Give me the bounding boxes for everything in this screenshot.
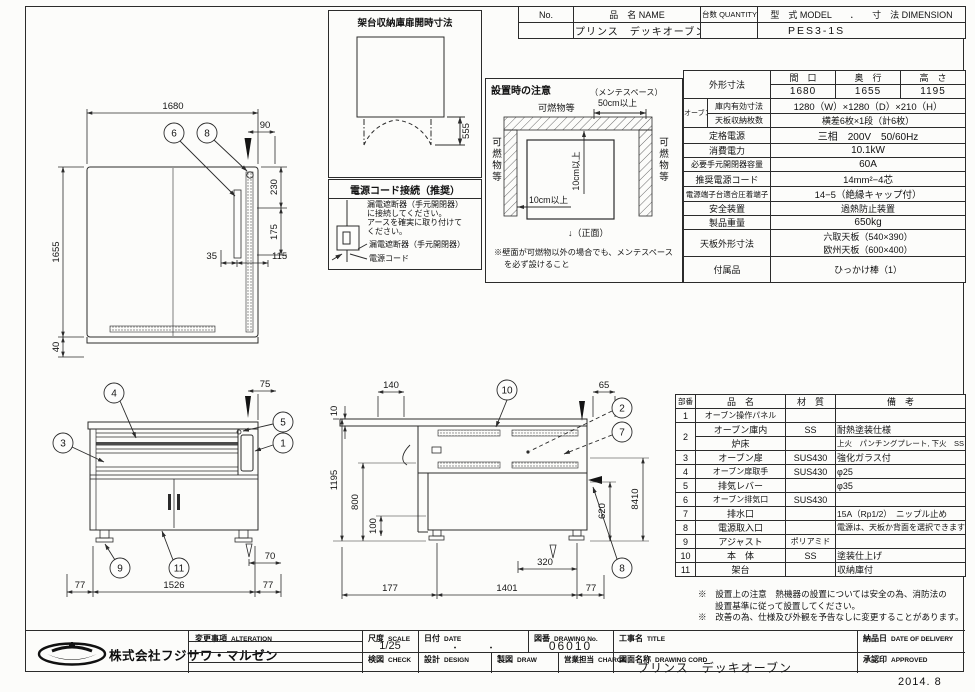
part-no: 5 [676,479,696,493]
install-note-1: ※壁面が可燃物以外の場合でも、メンテスペース [494,247,673,257]
combustible-top-label: 可燃物等 [538,102,575,113]
check-header: 検図CHECK [365,653,414,666]
part-mat: SS [786,423,836,437]
part-no: 11 [676,563,696,577]
alteration-line-3 [189,662,362,663]
balloon-1: 1 [280,439,286,450]
header-table: No. 品 名 NAME 台数 QUANTITY 型 式 MODEL ． 寸 法… [518,6,966,39]
drawing-number: 06010 [528,639,613,653]
design-en: DESIGN [444,657,469,664]
parts-row-11: 11 架台 収納庫付 [676,563,966,577]
side-dim-1195: 1195 [329,470,340,490]
front-dim-77-left: 77 [75,580,86,591]
plan-dim-90: 90 [260,120,271,131]
company-logo-icon [35,639,109,667]
side-outline [340,401,602,558]
note-line-1: ※ 設置上の注意 熱機器の設置については安全の為、消防法の [698,589,962,601]
spec-h-value: 1195 [901,85,966,99]
combustible-left-label: 可燃物等 [488,137,502,183]
part-note: 強化ガラス付 [836,451,966,465]
title-block: 株式会社フジサワ・マルゼン 変更事項ALTERATION 尺度SCALE 1/2… [25,630,965,672]
part-mat [786,521,836,535]
parts-row-2b: 炉床 上火 パンチングプレート, 下火 SS [676,437,966,451]
part-name: オーブン排気口 [696,493,786,507]
part-name: 排水口 [696,507,786,521]
side-dim-65: 65 [599,380,610,391]
front-dim-70: 70 [265,551,276,562]
spec-w-label: 間 口 [771,71,836,85]
model-number: PES3-1S [758,23,966,39]
part-note: 収納庫付 [836,563,966,577]
delivery-en: DATE OF DELIVERY [891,636,953,643]
approved-header: 承認印APPROVED [860,653,930,666]
spec-d-label: 奥 行 [836,71,901,85]
part-mat: SS [786,549,836,563]
part-name: 排気レバー [696,479,786,493]
part-no: 4 [676,465,696,479]
parts-header-no: 部番 [676,395,696,409]
tray-size-line1: 六取天板（540×390） [772,230,964,243]
part-name: 本 体 [696,549,786,563]
spec-tray-size-value: 六取天板（540×390） 欧州天板（600×400） [771,230,966,257]
dim-10cm-vertical: 10cm以上 [571,151,581,190]
balloon-6: 6 [171,129,177,140]
spec-terminal-label: 電源端子台適合圧着端子 [684,187,771,202]
charge-jp: 営業担当 [564,655,594,664]
part-mat: SUS430 [786,493,836,507]
side-dim-77: 77 [586,583,597,594]
balloon-9: 9 [117,564,123,575]
spec-consumption-label: 消費電力 [684,144,771,158]
parts-row-7: 7 排水口 15A（Rp1/2） ニップル止め [676,507,966,521]
plan-dim-230: 230 [269,179,280,195]
parts-row-5: 5 排気レバー φ35 [676,479,966,493]
side-dimensions [333,392,649,599]
drawing-sheet: No. 品 名 NAME 台数 QUANTITY 型 式 MODEL ． 寸 法… [0,0,975,692]
scale-value: 1/25 [362,640,418,652]
front-view-drawing: 75 70 77 1526 77 4 3 5 1 9 11 [25,378,325,628]
spec-outline-label: 外形寸法 [684,71,771,99]
side-dim-140: 140 [383,380,399,391]
spec-safety-label: 安全装置 [684,202,771,216]
part-name: オーブン扉取手 [696,465,786,479]
spec-tray-value: 横差6枚×1段（計6枚） [771,114,966,128]
part-name: 炉床 [696,437,786,451]
part-note: 塗装仕上げ [836,549,966,563]
part-note [836,409,966,423]
spec-d-value: 1655 [836,85,901,99]
balloon-3: 3 [60,439,66,450]
part-name: アジャスト [696,535,786,549]
product-name: プリンス デッキオーブン [574,23,701,39]
header-no-value [519,23,574,39]
check-jp: 検図 [368,655,384,664]
stand-outline [357,37,465,145]
part-no: 6 [676,493,696,507]
part-no: 10 [676,549,696,563]
part-mat [786,437,836,451]
side-dim-620: 620 [597,503,608,519]
part-no: 1 [676,409,696,423]
parts-header-note: 備 考 [836,395,966,409]
parts-row-3: 3 オーブン扉 SUS430 強化ガラス付 [676,451,966,465]
front-dim-1526: 1526 [163,580,184,591]
part-mat [786,409,836,423]
side-dim-177: 177 [382,583,398,594]
spec-power-label: 定格電源 [684,128,771,144]
side-dim-8410: 8410 [630,488,641,509]
side-dim-100: 100 [368,518,379,534]
plan-dim-1680: 1680 [162,101,183,112]
balloon-10: 10 [501,386,513,397]
spec-safety-value: 過熱防止装置 [771,202,966,216]
spec-accessory-value: ひっかけ棒（1） [771,257,966,283]
spec-consumption-value: 10.1kW [771,144,966,158]
part-mat [786,479,836,493]
parts-row-2a: 2 オーブン庫内 SS 耐熱塗装仕様 [676,423,966,437]
spec-terminal-value: 14−5（絶縁キャップ付） [771,187,966,202]
part-name: オーブン操作パネル [696,409,786,423]
construction-title-jp: 工事名 [619,634,643,643]
tray-size-line2: 欧州天板（600×400） [772,243,964,256]
stand-door-box-title: 架台収納庫扉開時寸法 [329,15,481,29]
plan-dim-115: 115 [272,251,287,262]
parts-row-8: 8 電源取入口 電源は、天板か背面を選択できます [676,521,966,535]
spec-table: 外形寸法 間 口 奥 行 高 さ 1680 1655 1195 オーブン 庫内有… [683,70,966,283]
stand-dim-555: 555 [461,123,472,139]
plan-dim-40: 40 [51,342,62,353]
part-name: 電源取入口 [696,521,786,535]
part-mat [786,507,836,521]
part-note [836,493,966,507]
front-dim-77-right: 77 [263,580,274,591]
side-dim-1401: 1401 [496,583,517,594]
part-mat: SUS430 [786,465,836,479]
spec-power-value: 三相 200V 50/60Hz [771,128,966,144]
parts-header-name: 品 名 [696,395,786,409]
header-no-label: No. [519,7,574,23]
part-note: 15A（Rp1/2） ニップル止め [836,507,966,521]
stand-door-drawing: 555 [329,29,481,175]
power-cord-label: 電源コード [369,253,409,264]
drawing-name-value: プリンス デッキオーブン [637,659,792,676]
side-dim-320: 320 [537,557,553,568]
balloon-11: 11 [174,564,185,575]
balloon-2: 2 [619,404,625,415]
maint-50cm-label: 50cm以上 [598,98,637,108]
parts-table: 部番 品 名 材 質 備 考 1 オーブン操作パネル 2 オーブン庫内 SS 耐… [675,394,966,577]
breaker-symbol [332,200,367,262]
spec-accessory-label: 付属品 [684,257,771,283]
part-note: φ35 [836,479,966,493]
part-name: 架台 [696,563,786,577]
parts-header-mat: 材 質 [786,395,836,409]
install-caution-box: 設置時の注意 [485,78,683,283]
balloon-5: 5 [280,418,286,429]
front-balloon-leaders [53,383,293,578]
balloon-4: 4 [111,389,117,400]
part-no: 7 [676,507,696,521]
design-jp: 設計 [424,655,440,664]
parts-row-9: 9 アジャスト ポリアミド [676,535,966,549]
design-header: 設計DESIGN [421,653,472,666]
combustible-right-label: 可燃物等 [655,137,669,183]
part-no: 9 [676,535,696,549]
header-qty-value [701,23,758,39]
alteration-header: 変更事項ALTERATION [192,632,275,645]
front-direction-label: ↓（正面） [568,228,609,238]
part-no: 3 [676,451,696,465]
parts-row-1: 1 オーブン操作パネル [676,409,966,423]
side-dim-10: 10 [329,406,340,417]
spec-inner-label: 庫内有効寸法 [708,99,771,114]
front-dim-75: 75 [260,379,271,390]
spec-h-label: 高 さ [901,71,966,85]
spec-tray-label: 天板収納枚数 [708,114,771,128]
install-note-2: を必ず設けること [504,259,570,269]
parts-row-10: 10 本 体 SS 塗装仕上げ [676,549,966,563]
tb-sep [558,652,559,673]
balloon-8-side: 8 [619,564,625,575]
balloon-8: 8 [204,129,210,140]
spec-inner-value: 1280（W）×1280（D）×210（H） [771,99,966,114]
header-model-dim-label: 型 式 MODEL ． 寸 法 DIMENSION [758,7,966,23]
note-line-2: 設置基準に従って設置してください。 [698,601,962,613]
front-outline [88,422,258,542]
plan-view-drawing: 1680 90 230 175 1655 40 35 115 6 8 [25,80,325,380]
spec-w-value: 1680 [771,85,836,99]
approved-jp: 承認印 [863,655,887,664]
alteration-line-2 [189,652,362,653]
part-note: 上火 パンチングプレート, 下火 SS [836,437,966,451]
check-en: CHECK [388,657,411,664]
part-note [836,535,966,549]
spec-weight-label: 製品重量 [684,216,771,230]
header-name-label: 品 名 NAME [574,7,701,23]
delivery-jp: 納品日 [863,634,887,643]
part-mat [786,563,836,577]
caution-notes: ※ 設置上の注意 熱機器の設置については安全の為、消防法の 設置基準に従って設置… [698,589,962,624]
part-name: オーブン庫内 [696,423,786,437]
dim-10cm-horizontal: 10cm以上 [529,195,568,205]
spec-weight-value: 650kg [771,216,966,230]
spec-breaker-label: 必要手元開閉器容量 [684,158,771,172]
draw-en: DRAW [517,657,537,664]
part-note: φ25 [836,465,966,479]
side-balloon-leaders [496,380,632,578]
spec-tray-size-label: 天板外形寸法 [684,230,771,257]
header-qty-label: 台数 QUANTITY [701,7,758,23]
part-no: 8 [676,521,696,535]
part-note: 電源は、天板か背面を選択できます [836,521,966,535]
parts-row-6: 6 オーブン排気口 SUS430 [676,493,966,507]
alteration-line-1 [189,641,362,642]
install-plan-drawing: （メンテスペース） 50cm以上 可燃物等 10cm以上 10cm以上 ↓（正面… [486,79,682,282]
side-dim-800: 800 [350,494,361,510]
note-line-3: ※ 改善の為、仕様及び外観を予告なしに変更することがあります。 [698,612,962,624]
spec-oven-label: オーブン [684,99,708,128]
delivery-header: 納品日DATE OF DELIVERY [860,632,956,645]
spec-cord-value: 14mm²−4芯 [771,172,966,187]
parts-row-4: 4 オーブン扉取手 SUS430 φ25 [676,465,966,479]
plan-dim-175: 175 [269,224,280,240]
spec-breaker-value: 60A [771,158,966,172]
draw-jp: 製図 [497,655,513,664]
construction-title-header: 工事名TITLE [616,632,668,645]
part-note: 耐熱塗装仕様 [836,423,966,437]
power-cord-box: 電源コード接続（推奨） 漏電遮断器（手元開閉器） に接続してください。 アースを… [328,179,482,270]
balloon-7: 7 [619,428,625,439]
plan-dim-1655: 1655 [51,241,62,262]
stand-door-box: 架台収納庫扉開時寸法 555 [328,10,482,178]
part-name: オーブン扉 [696,451,786,465]
part-no: 2 [676,423,696,451]
part-mat: SUS430 [786,451,836,465]
part-mat: ポリアミド [786,535,836,549]
side-view-drawing: 140 10 65 1195 800 100 620 8410 320 177 … [320,375,675,625]
date-stamp: 2014. 8 [898,676,942,688]
construction-title-en: TITLE [647,636,665,643]
draw-header: 製図DRAW [494,653,540,666]
maint-space-label: （メンテスペース） [590,88,663,97]
power-note-4: ください。 [367,226,407,237]
plan-dim-35: 35 [206,251,217,262]
spec-cord-label: 推奨電源コード [684,172,771,187]
approved-en: APPROVED [891,657,927,664]
tb-sep [491,652,492,673]
breaker-label: 漏電遮断器（手元開閉器） [369,239,465,250]
